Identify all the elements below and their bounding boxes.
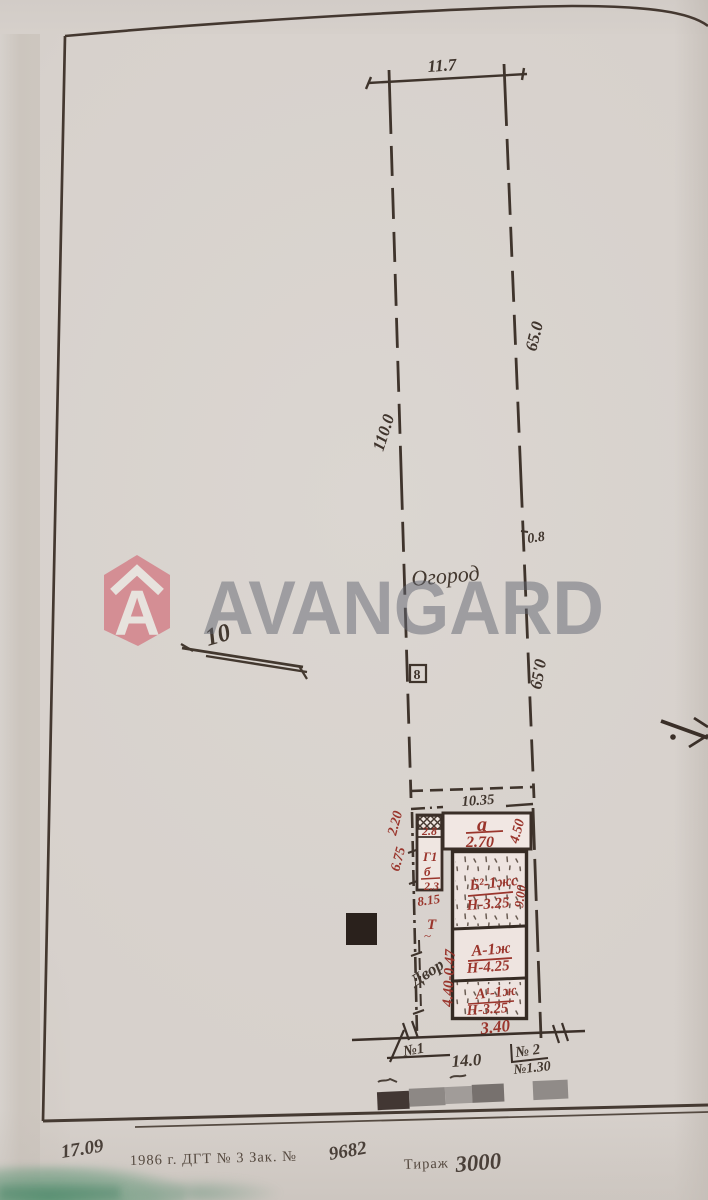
svg-text:Н-4.25: Н-4.25 [465,958,510,977]
svg-text:8.15: 8.15 [416,891,441,909]
svg-text:Н-3.25: Н-3.25 [465,895,510,914]
svg-text:б: б [424,864,431,879]
svg-text:Г1: Г1 [422,849,437,864]
svg-text:9682: 9682 [327,1138,369,1165]
svg-text:AVANGARD: AVANGARD [202,566,604,651]
svg-text:3000: 3000 [453,1148,502,1177]
svg-text:6.75: 6.75 [388,845,409,873]
svg-text:2.8: 2.8 [421,824,437,838]
svg-text:Тираж: Тираж [404,1155,449,1173]
svg-text:17.09: 17.09 [59,1135,105,1163]
svg-text:65.0: 65.0 [521,319,547,353]
svg-text:10.35: 10.35 [461,792,495,810]
svg-text:А-1ж: А-1ж [470,940,512,960]
svg-text:14.0: 14.0 [451,1050,483,1071]
svg-text:2.70: 2.70 [465,834,494,851]
svg-text:11.7: 11.7 [427,55,459,76]
svg-text:№1.30: №1.30 [512,1059,552,1078]
svg-text:8: 8 [414,668,421,683]
svg-text:110.0: 110.0 [369,411,399,453]
svg-text:65'0: 65'0 [526,657,550,691]
svg-text:A: A [114,577,160,649]
svg-text:~: ~ [424,928,431,943]
svg-text:0.8: 0.8 [526,530,545,547]
svg-text:1986 г. ДГТ № 3 Зак. №: 1986 г. ДГТ № 3 Зак. № [130,1149,297,1169]
svg-text:2.20: 2.20 [385,809,406,838]
